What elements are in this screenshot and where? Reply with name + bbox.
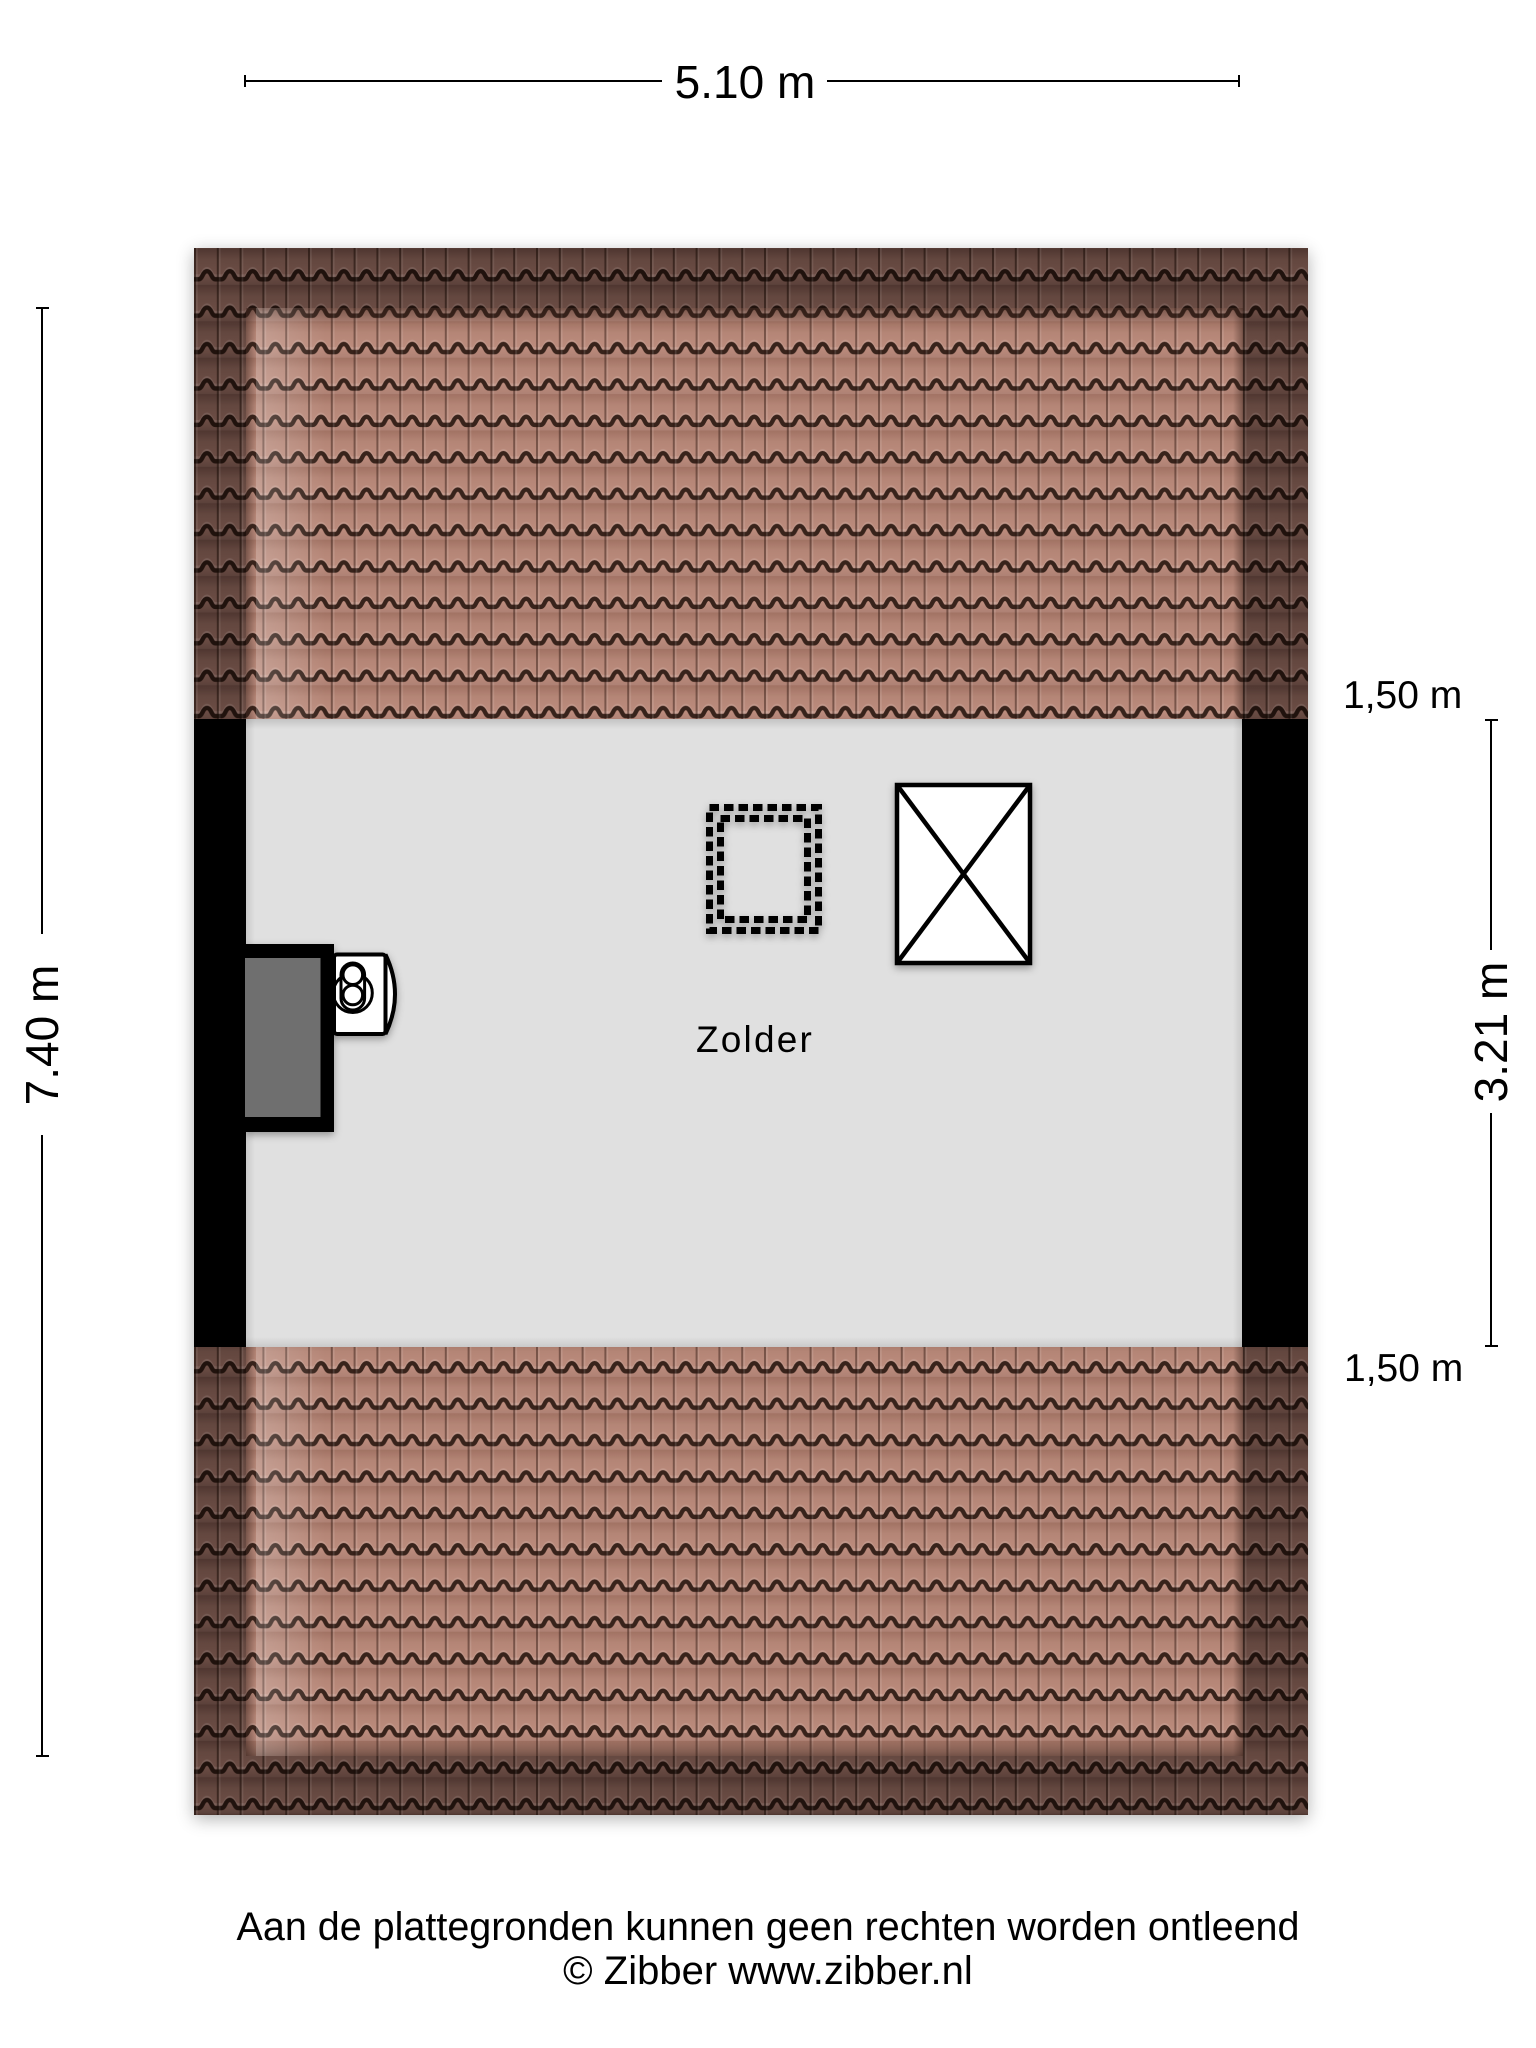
- svg-text:Zolder: Zolder: [696, 1019, 814, 1060]
